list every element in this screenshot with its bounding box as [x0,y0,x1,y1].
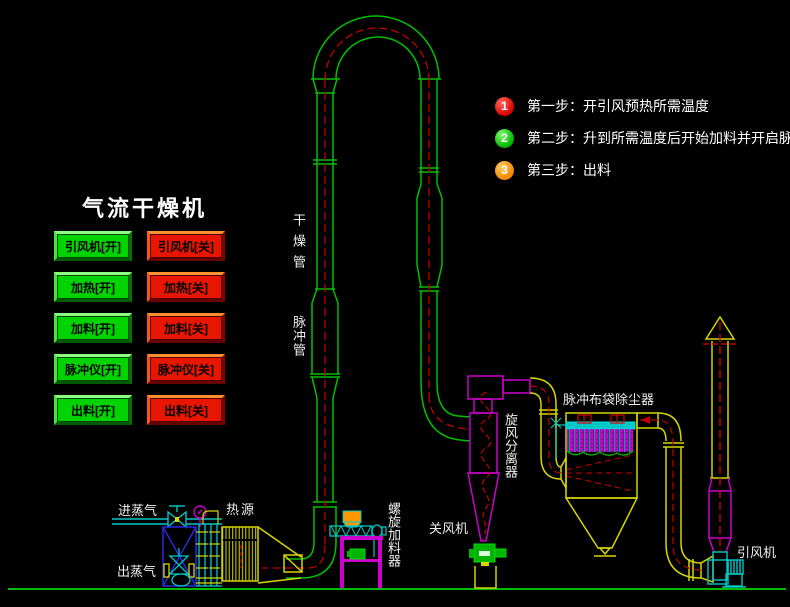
flow-arrowhead [641,416,650,424]
step-row-3: 3 第三步：出料 [495,160,790,180]
operating-steps: 1 第一步：开引风预热所需温度 2 第二步：升到所需温度后开始加料并开启脉冲仪 … [495,96,790,192]
cyclone-to-bagfilter-pipe [530,378,566,488]
steam-outlet-valve [164,548,194,577]
screw-feeder-label: 螺旋加料器 [384,502,403,567]
support-frame [163,527,196,586]
step-row-1: 1 第一步：开引风预热所需温度 [495,96,790,116]
fan-pipe-centerline [640,420,703,570]
cyclone-vortex-line [481,392,491,534]
page-title: 气流干燥机 [82,191,207,223]
step-2-badge: 2 [495,129,514,148]
hmi-screen: 气流干燥机 引风机[开] 引风机[关] 加热[开] 加热[关] 加料[开] 加料… [0,0,790,607]
step-2-text: 第二步：升到所需温度后开始加料并开启脉冲仪 [527,128,790,148]
fan-on-button[interactable]: 引风机[开] [54,231,132,261]
steam-in-label: 进蒸气 [118,500,157,519]
bagfilter-to-fan-pipe [658,413,713,582]
pulse-blowpipe [551,418,566,458]
feeder-stand [340,536,383,588]
step-3-text: 第三步：出料 [527,160,611,180]
heat-exchanger [222,527,258,581]
heat-off-button[interactable]: 加热[关] [147,272,225,302]
screw-feeder [330,511,386,588]
condensate-pump [172,574,190,586]
steam-out-label: 出蒸气 [117,561,156,580]
step-row-2: 2 第二步：升到所需温度后开始加料并开启脉冲仪 [495,128,790,148]
header-flanges [196,511,222,583]
step-1-text: 第一步：开引风预热所需温度 [527,96,709,116]
filter-bags [567,429,633,452]
collection-box [475,566,496,588]
steam-inlet-pipe [112,519,222,524]
heat-source-label: 热源 [226,499,256,518]
feed-on-button[interactable]: 加料[开] [54,313,132,343]
induced-fan-label: 引风机 [737,542,776,561]
drying-pipe-label: 干燥管 [289,213,308,276]
rotary-valve-label: 关风机 [429,518,468,537]
discharge-on-button[interactable]: 出料[开] [54,395,132,425]
cyclone-label: 旋风分离器 [501,413,520,478]
heat-on-button[interactable]: 加热[开] [54,272,132,302]
feed-off-button[interactable]: 加料[关] [147,313,225,343]
cyclone-pipe-centerline [530,386,562,473]
dryer-duct [286,16,470,578]
flow-centerlines [262,28,470,568]
rotary-valve [469,544,506,566]
cyclone-separator [468,376,530,541]
discharge-off-button[interactable]: 出料[关] [147,395,225,425]
filter-bags-bottom [567,451,633,455]
control-button-panel: 引风机[开] 引风机[关] 加热[开] 加热[关] 加料[开] 加料[关] 脉冲… [54,231,225,425]
fan-off-button[interactable]: 引风机[关] [147,231,225,261]
step-3-badge: 3 [495,161,514,180]
bag-filter-label: 脉冲布袋除尘器 [563,389,654,408]
pulse-pipe-label: 脉冲管 [289,315,308,357]
step-1-badge: 1 [495,97,514,116]
steam-inlet-valve [168,506,186,527]
header-tubes [196,524,222,586]
pressure-gauge [194,506,206,527]
bagfilter-inlet-flow [566,455,633,491]
bag-filter [566,413,658,556]
pulse-manifold [566,422,635,429]
hot-air-duct [258,527,302,583]
pulse-on-button[interactable]: 脉冲仪[开] [54,354,132,384]
pulse-valves [578,415,624,423]
feeder-motor [350,549,365,559]
exhaust-stack [703,317,737,552]
pulse-off-button[interactable]: 脉冲仪[关] [147,354,225,384]
